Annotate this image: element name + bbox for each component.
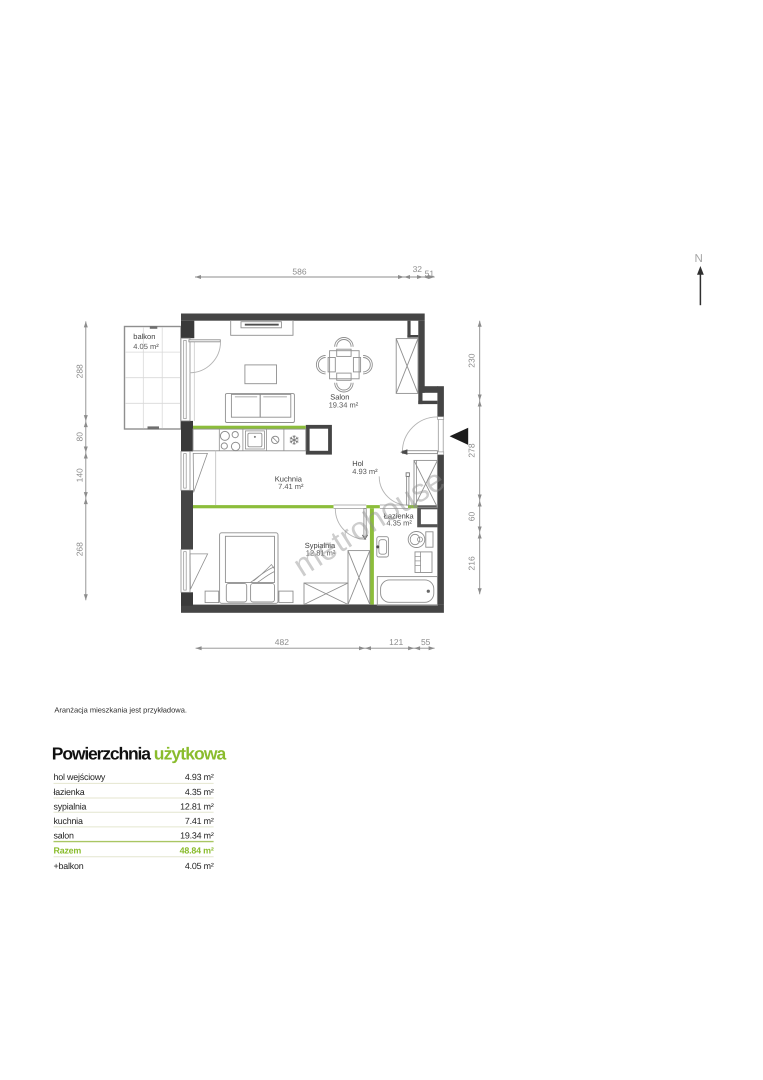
svg-text:55: 55: [421, 637, 431, 647]
svg-text:32: 32: [413, 264, 423, 274]
svg-text:121: 121: [389, 637, 403, 647]
svg-text:7.41 m²: 7.41 m²: [278, 482, 304, 491]
svg-text:4.93 m²: 4.93 m²: [352, 467, 378, 476]
svg-text:+balkon: +balkon: [54, 861, 84, 871]
svg-text:51: 51: [425, 269, 435, 279]
svg-text:216: 216: [466, 556, 476, 570]
svg-text:Powierzchnia: Powierzchnia: [52, 743, 151, 763]
svg-text:balkon: balkon: [133, 332, 155, 341]
svg-text:19.34 m²: 19.34 m²: [329, 400, 359, 409]
svg-text:48.84 m²: 48.84 m²: [180, 846, 214, 856]
svg-text:4.93 m²: 4.93 m²: [185, 772, 214, 782]
svg-text:kuchnia: kuchnia: [54, 816, 83, 826]
svg-text:Razem: Razem: [54, 846, 82, 856]
svg-text:4.35 m²: 4.35 m²: [185, 787, 214, 797]
svg-text:łazienka: łazienka: [54, 787, 85, 797]
svg-text:Aranżacja mieszkania jest przy: Aranżacja mieszkania jest przykładowa.: [54, 705, 187, 714]
svg-text:586: 586: [292, 266, 306, 276]
svg-text:482: 482: [275, 637, 289, 647]
svg-text:12.81 m²: 12.81 m²: [180, 801, 214, 811]
svg-text:230: 230: [466, 353, 476, 367]
svg-text:278: 278: [466, 443, 476, 457]
svg-text:268: 268: [74, 542, 84, 556]
svg-text:7.41 m²: 7.41 m²: [185, 816, 214, 826]
svg-text:288: 288: [74, 364, 84, 378]
svg-text:4.05 m²: 4.05 m²: [133, 342, 159, 351]
svg-text:80: 80: [74, 432, 84, 442]
svg-text:19.34 m²: 19.34 m²: [180, 830, 214, 840]
svg-text:salon: salon: [54, 830, 74, 840]
svg-text:hol wejściowy: hol wejściowy: [54, 772, 106, 782]
svg-text:sypialnia: sypialnia: [54, 801, 87, 811]
svg-text:60: 60: [466, 512, 476, 522]
svg-text:140: 140: [74, 468, 84, 482]
svg-text:4.05 m²: 4.05 m²: [185, 861, 214, 871]
svg-text:użytkowa: użytkowa: [154, 743, 227, 763]
svg-text:N: N: [695, 253, 703, 265]
